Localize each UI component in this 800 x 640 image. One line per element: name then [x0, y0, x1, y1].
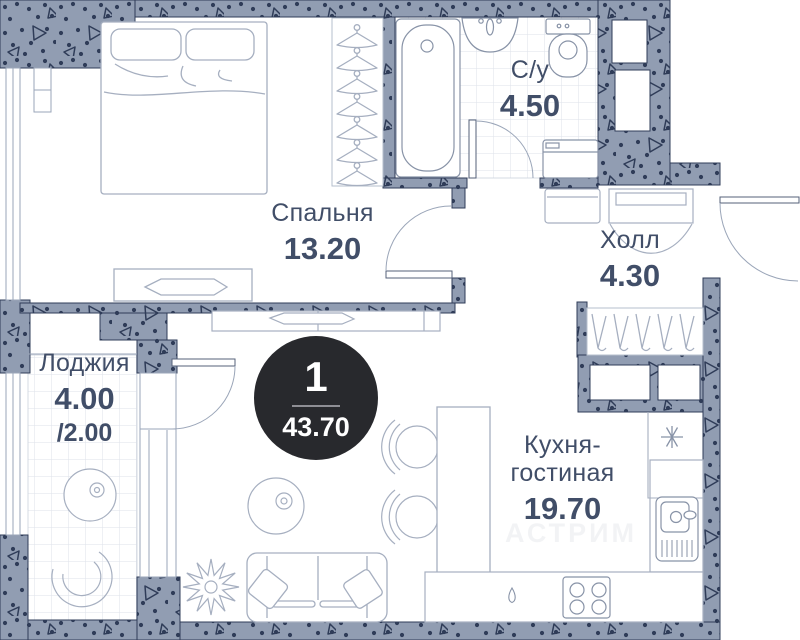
hall-label: Холл 4.30 [560, 226, 700, 294]
bathroom-label: С/у 4.50 [460, 56, 600, 124]
bedroom-area: 13.20 [284, 232, 362, 267]
faucet-icon [487, 19, 494, 35]
tv [270, 313, 354, 324]
hall-closet [587, 308, 703, 355]
bed [101, 22, 267, 194]
kitchen-name-line2: гостиная [510, 459, 614, 487]
tv-console [212, 311, 440, 331]
tv-on-dresser [145, 279, 227, 295]
loggia-table [64, 469, 116, 521]
hall-area: 4.30 [600, 259, 660, 294]
stove [563, 577, 610, 618]
bedroom-label: Спальня 13.20 [225, 199, 420, 267]
kitchen-label: Кухня- гостиная 19.70 [480, 431, 645, 527]
washing-machine [543, 140, 598, 178]
sofa [247, 553, 387, 622]
kitchen-name-line1: Кухня- [524, 431, 601, 459]
loggia-door-leaf [172, 359, 235, 366]
plant [183, 559, 239, 615]
badge-divider [292, 405, 340, 407]
kitchen-area: 19.70 [524, 492, 602, 527]
bedroom-name: Спальня [271, 199, 374, 227]
drain-icon [421, 40, 433, 52]
loggia-area: 4.00 [54, 382, 114, 417]
loggia-area-secondary: /2.00 [57, 419, 113, 447]
vent-asterisk-icon [661, 426, 683, 448]
total-area-badge: 1 43.70 [254, 336, 378, 460]
bathroom-area: 4.50 [500, 89, 560, 124]
rooms-count: 1 [304, 356, 327, 398]
bathroom-door-leaf [469, 120, 476, 178]
round-rug [248, 478, 304, 534]
kitchen-sink [656, 497, 698, 561]
entrance-door-leaf [720, 197, 799, 203]
dresser [114, 269, 252, 301]
total-area-value: 43.70 [282, 414, 350, 441]
hall-name: Холл [600, 226, 660, 254]
bathtub [396, 19, 460, 177]
dining-chairs [382, 420, 438, 544]
loggia-label: Лоджия 4.00 /2.00 [22, 349, 147, 447]
wardrobe [332, 18, 383, 186]
entrance-door-arc [720, 203, 798, 281]
floor-plan-drawing [0, 0, 800, 640]
bedroom-door-leaf [386, 271, 452, 278]
bathroom-name: С/у [511, 56, 549, 84]
floor-plan-page: АСТРИМ Спальня 13.20 С/у 4.50 Холл 4.30 … [0, 0, 800, 640]
loggia-name: Лоджия [39, 349, 129, 377]
loggia-door-arc [172, 366, 235, 429]
fridge [545, 189, 600, 223]
